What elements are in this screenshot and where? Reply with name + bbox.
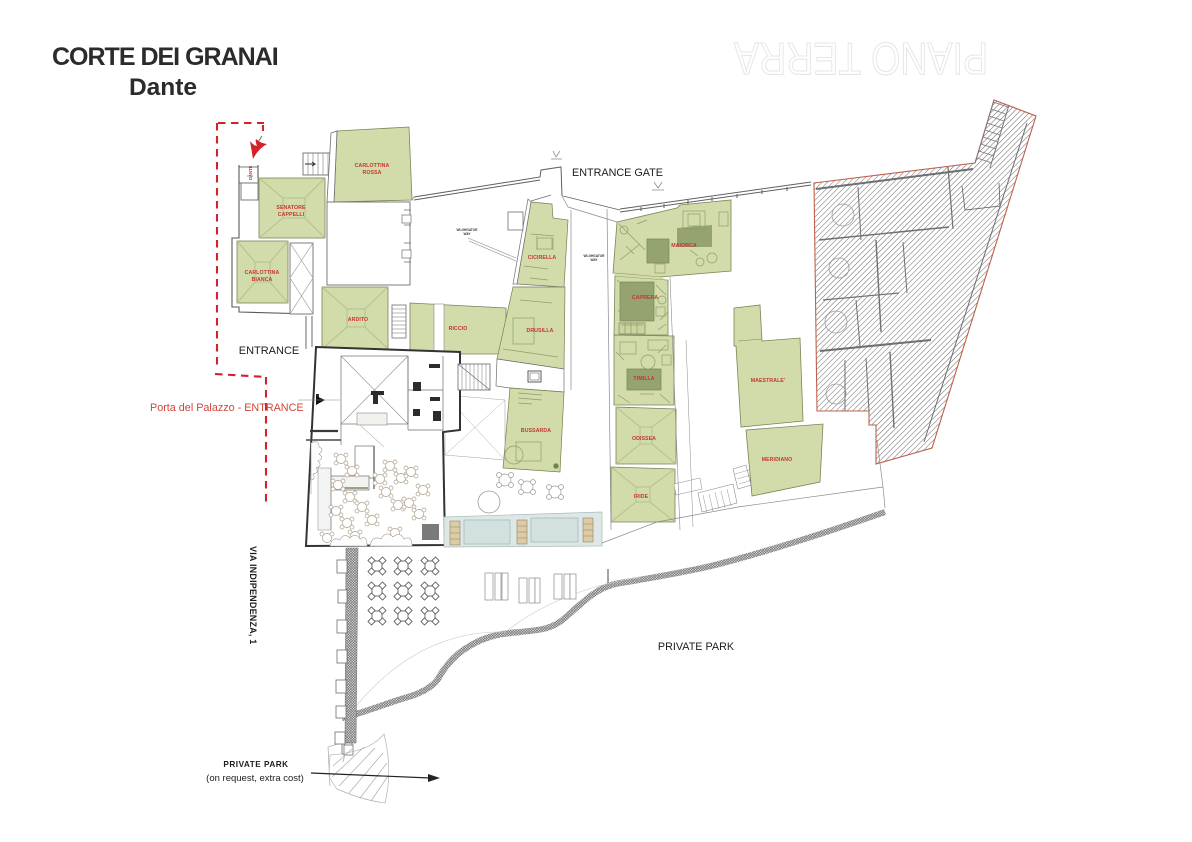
svg-text:TIMILLA: TIMILLA bbox=[633, 376, 654, 382]
svg-text:(on request, extra cost): (on request, extra cost) bbox=[206, 773, 304, 784]
svg-text:Porta del Palazzo - ENTRANCE: Porta del Palazzo - ENTRANCE bbox=[150, 402, 304, 414]
svg-text:ROSSA: ROSSA bbox=[363, 170, 382, 176]
svg-text:IRIDE: IRIDE bbox=[634, 494, 649, 500]
svg-text:SENATORE: SENATORE bbox=[276, 205, 306, 211]
svg-text:WAY: WAY bbox=[464, 232, 472, 236]
svg-text:PRIVATE PARK: PRIVATE PARK bbox=[658, 641, 735, 653]
svg-text:PRIVATE PARK: PRIVATE PARK bbox=[223, 760, 288, 769]
svg-text:ODISSEA: ODISSEA bbox=[632, 436, 656, 442]
svg-text:WAY: WAY bbox=[591, 258, 599, 262]
svg-text:MAESTRALE': MAESTRALE' bbox=[751, 378, 786, 384]
svg-text:MERIDIANO: MERIDIANO bbox=[762, 457, 793, 463]
svg-text:ARDITO: ARDITO bbox=[348, 317, 368, 323]
svg-text:RICCIO: RICCIO bbox=[449, 326, 468, 332]
svg-text:CORTE DEI GRANAI: CORTE DEI GRANAI bbox=[52, 43, 278, 71]
svg-text:MAIORCA: MAIORCA bbox=[671, 243, 697, 249]
svg-text:DANTE: DANTE bbox=[248, 165, 253, 180]
svg-text:BIANCA: BIANCA bbox=[252, 277, 273, 283]
svg-text:ENTRANCE GATE: ENTRANCE GATE bbox=[572, 167, 663, 179]
svg-text:CAPPELLI: CAPPELLI bbox=[278, 212, 305, 218]
svg-text:Dante: Dante bbox=[129, 74, 197, 101]
svg-text:CARLOTTINA: CARLOTTINA bbox=[245, 270, 280, 276]
svg-text:CICIRELLA: CICIRELLA bbox=[528, 255, 557, 261]
svg-text:CARLOTTINA: CARLOTTINA bbox=[355, 163, 390, 169]
svg-text:VIA INDIPENDENZA, 1: VIA INDIPENDENZA, 1 bbox=[248, 546, 258, 644]
svg-text:DRUSILLA: DRUSILLA bbox=[526, 328, 553, 334]
svg-text:PIANO TERRA: PIANO TERRA bbox=[734, 33, 988, 84]
svg-text:CAPRERA: CAPRERA bbox=[632, 295, 659, 301]
svg-text:ENTRANCE: ENTRANCE bbox=[239, 345, 300, 357]
svg-text:BUSSARDA: BUSSARDA bbox=[521, 428, 551, 434]
